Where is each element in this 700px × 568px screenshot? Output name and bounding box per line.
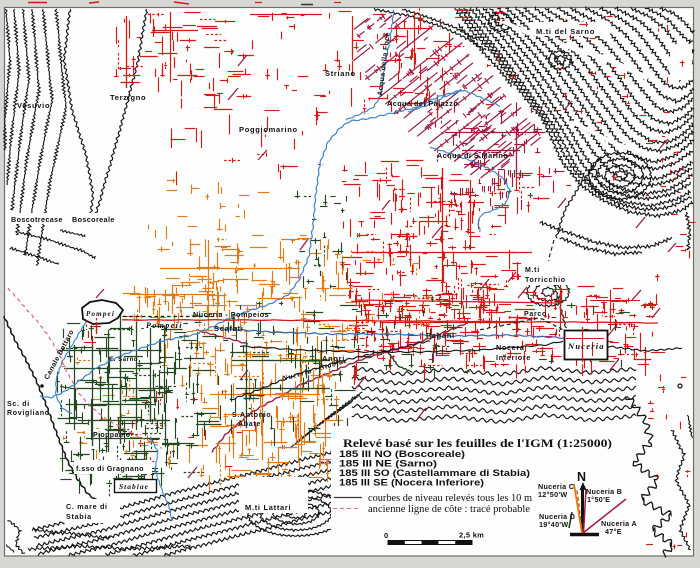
svg-text:Acqua del Palazzo: Acqua del Palazzo xyxy=(387,99,458,108)
svg-text:2,5 km: 2,5 km xyxy=(459,531,484,540)
svg-text:Pagani: Pagani xyxy=(426,331,455,340)
svg-text:C. mare di: C. mare di xyxy=(66,502,108,511)
svg-text:Nuceria - Pompeios: Nuceria - Pompeios xyxy=(193,310,269,319)
svg-text:Nuceria: Nuceria xyxy=(567,341,605,351)
svg-text:ancienne ligne de côte : tracé: ancienne ligne de côte : tracé probable xyxy=(368,504,531,515)
svg-text:1°50'E: 1°50'E xyxy=(587,495,610,504)
svg-text:0: 0 xyxy=(384,531,388,540)
svg-text:Acqua di S.Marino: Acqua di S.Marino xyxy=(437,151,508,160)
svg-text:Striano: Striano xyxy=(325,69,356,78)
svg-text:Scafati: Scafati xyxy=(214,324,244,333)
svg-text:Vesuvio: Vesuvio xyxy=(17,101,50,110)
svg-text:Terzigno: Terzigno xyxy=(110,93,146,102)
svg-text:Pompei: Pompei xyxy=(86,310,115,318)
svg-text:19°40'W: 19°40'W xyxy=(539,520,568,529)
svg-text:12°50'W: 12°50'W xyxy=(538,490,567,499)
svg-text:Boscoreale: Boscoreale xyxy=(72,215,115,224)
svg-text:Boscotrecase: Boscotrecase xyxy=(11,215,63,224)
svg-text:N: N xyxy=(577,470,586,484)
svg-text:Parco: Parco xyxy=(524,311,547,318)
svg-text:185 III NE (Sarno): 185 III NE (Sarno) xyxy=(339,459,437,469)
svg-text:f.sso di Gragnano: f.sso di Gragnano xyxy=(76,464,144,473)
svg-text:Sc. di: Sc. di xyxy=(7,401,30,408)
svg-text:Rovigliano: Rovigliano xyxy=(7,410,50,417)
svg-text:Nocera: Nocera xyxy=(496,343,525,352)
svg-text:Pioppaino: Pioppaino xyxy=(93,432,130,439)
svg-text:S.Antonio: S.Antonio xyxy=(232,412,271,419)
svg-text:Relevé basé sur les feuilles d: Relevé basé sur les feuilles de l'IGM (1… xyxy=(343,436,612,450)
svg-text:Poggiomarino: Poggiomarino xyxy=(239,125,298,134)
svg-text:F. Sarno: F. Sarno xyxy=(110,357,138,363)
svg-text:Stabia: Stabia xyxy=(66,512,92,521)
svg-text:185 III SO (Castellammare di S: 185 III SO (Castellammare di Stabia) xyxy=(339,468,530,478)
svg-text:185 III SE (Nocera Inferiore): 185 III SE (Nocera Inferiore) xyxy=(339,478,484,488)
svg-text:Pompeii: Pompeii xyxy=(146,321,183,330)
svg-text:M.ti Lattari: M.ti Lattari xyxy=(245,503,291,512)
svg-text:M.ti: M.ti xyxy=(525,267,540,274)
svg-text:Stabiae: Stabiae xyxy=(119,482,149,491)
svg-text:185 III NO (Boscoreale): 185 III NO (Boscoreale) xyxy=(339,449,465,459)
svg-text:Torricchio: Torricchio xyxy=(525,277,566,284)
svg-text:courbes de niveau relevés tous: courbes de niveau relevés tous les 10 m xyxy=(368,493,532,504)
svg-text:47°E: 47°E xyxy=(605,527,622,536)
svg-text:Abate: Abate xyxy=(238,421,261,428)
svg-text:Inferiore: Inferiore xyxy=(496,353,531,362)
svg-text:M.ti del Sarno: M.ti del Sarno xyxy=(536,27,595,36)
